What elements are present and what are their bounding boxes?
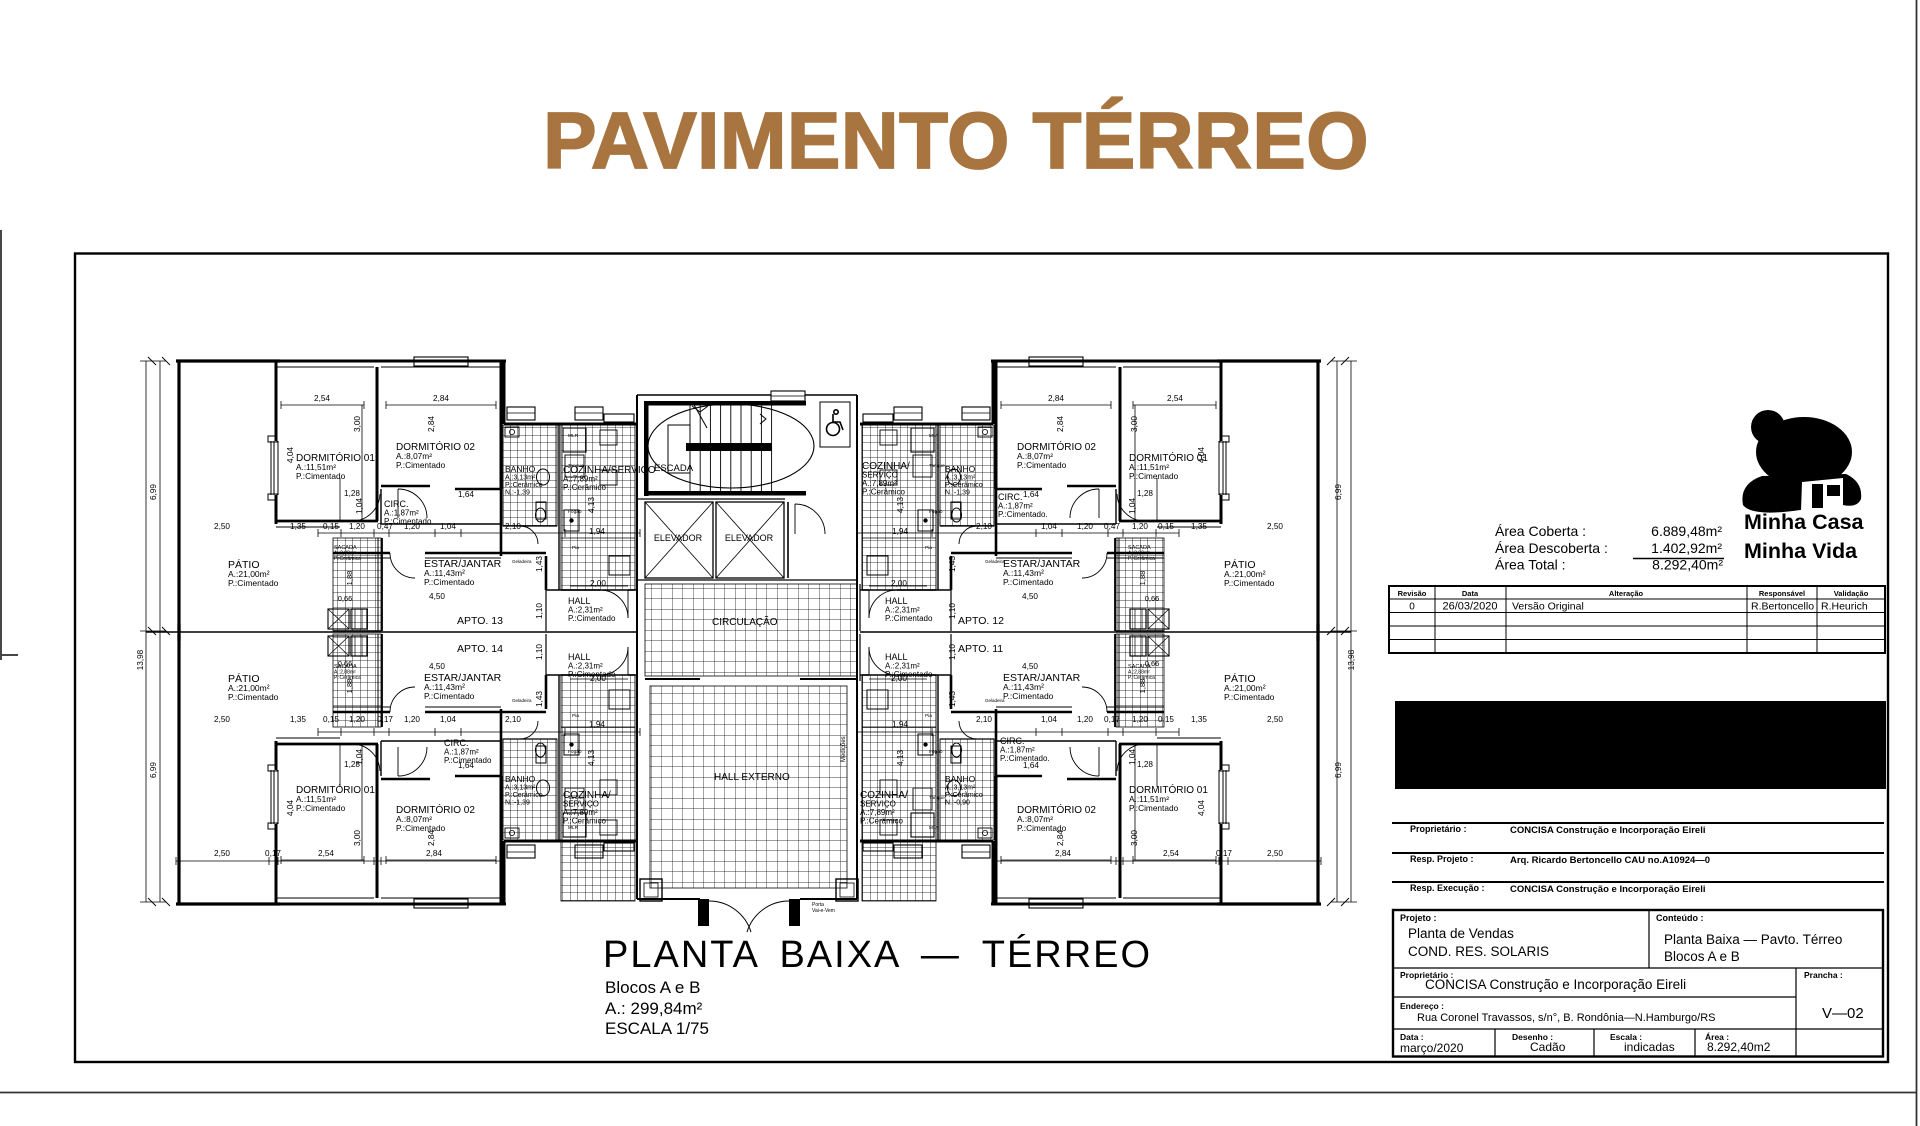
svg-text:1,28: 1,28 [1137, 760, 1153, 769]
svg-text:Data: Data [1462, 589, 1479, 598]
svg-text:1,04: 1,04 [1128, 749, 1137, 765]
svg-text:1,28: 1,28 [344, 760, 360, 769]
svg-text:ESCADA: ESCADA [654, 463, 694, 474]
svg-text:CIRCULAÇÃO: CIRCULAÇÃO [712, 615, 778, 628]
svg-text:2,54: 2,54 [1167, 394, 1183, 403]
svg-text:3,00: 3,00 [353, 416, 362, 432]
svg-text:1.402,92m²: 1.402,92m² [1651, 540, 1722, 556]
svg-text:N.:-1,39: N.:-1,39 [505, 800, 530, 807]
svg-text:P.:Cimentado: P.:Cimentado [424, 691, 475, 701]
svg-text:2,50: 2,50 [1267, 522, 1283, 531]
svg-text:1,20: 1,20 [349, 522, 365, 531]
svg-text:N.:-1,39: N.:-1,39 [945, 490, 970, 497]
svg-text:Pia: Pia [925, 713, 932, 719]
svg-text:0,17: 0,17 [377, 715, 393, 724]
svg-text:P.:Cerâmico: P.:Cerâmico [945, 792, 983, 799]
svg-text:0,17: 0,17 [265, 849, 281, 858]
svg-text:CONCISA Construção e Incorp: CONCISA Construção e Incorporação Eireli [1425, 977, 1686, 992]
svg-text:4,04: 4,04 [286, 447, 295, 463]
svg-text:Tanque: Tanque [929, 795, 945, 801]
svg-text:Geladeira: Geladeira [985, 698, 1005, 703]
svg-text:P.:Cimentado: P.:Cimentado [1003, 577, 1054, 587]
svg-text:Minha Casa: Minha Casa [1744, 510, 1865, 534]
svg-text:1,35: 1,35 [1191, 522, 1207, 531]
svg-text:P.:Cerâmico: P.:Cerâmico [505, 792, 543, 799]
svg-text:BANHO: BANHO [505, 774, 536, 784]
svg-text:P.:Cimentado: P.:Cimentado [396, 460, 446, 470]
svg-text:1,35: 1,35 [290, 715, 306, 724]
svg-text:1,20: 1,20 [1132, 522, 1148, 531]
svg-text:4,04: 4,04 [286, 800, 295, 816]
svg-text:P.:Cerâmico: P.:Cerâmico [945, 482, 983, 489]
svg-text:0,17: 0,17 [1104, 715, 1120, 724]
svg-text:3,00: 3,00 [1130, 830, 1139, 846]
svg-text:P.:Cimentado: P.:Cimentado [1224, 578, 1275, 588]
svg-text:Prancha :: Prancha : [1804, 970, 1843, 980]
svg-text:P.:Cimentado: P.:Cimentado [396, 823, 446, 833]
svg-text:COND. RES. SOLARIS: COND. RES. SOLARIS [1408, 944, 1549, 959]
svg-text:2,54: 2,54 [318, 849, 334, 858]
svg-text:1,94: 1,94 [892, 720, 908, 729]
svg-text:1,04: 1,04 [440, 715, 456, 724]
svg-text:2,50: 2,50 [214, 849, 230, 858]
svg-text:P.:Cimentado: P.:Cimentado [885, 614, 933, 623]
svg-text:BANHO: BANHO [945, 774, 976, 784]
svg-text:1,88: 1,88 [345, 571, 354, 586]
svg-text:P.:Cimentado: P.:Cimentado [1003, 691, 1054, 701]
svg-text:2,50: 2,50 [1267, 715, 1283, 724]
svg-text:R.Bertoncello: R.Bertoncello [1751, 601, 1814, 613]
svg-text:1,94: 1,94 [589, 527, 605, 536]
svg-text:BANHO: BANHO [945, 464, 976, 474]
svg-text:CIRC.: CIRC. [444, 738, 469, 748]
svg-text:Minha Vida: Minha Vida [1744, 539, 1858, 563]
svg-text:1,20: 1,20 [404, 715, 420, 724]
svg-text:HALL: HALL [885, 652, 908, 662]
svg-text:Validação: Validação [1834, 589, 1869, 598]
svg-text:0,15: 0,15 [1158, 715, 1174, 724]
svg-text:0,15: 0,15 [323, 522, 339, 531]
svg-text:Proprietário :: Proprietário : [1410, 824, 1467, 834]
svg-text:2,84: 2,84 [427, 416, 436, 432]
svg-text:P.:Cerâmica: P.:Cerâmica [1128, 556, 1155, 562]
svg-text:1,20: 1,20 [1132, 715, 1148, 724]
svg-text:HALL: HALL [568, 652, 591, 662]
svg-text:1,20: 1,20 [349, 715, 365, 724]
svg-text:6,99: 6,99 [1334, 762, 1343, 778]
svg-text:0,17: 0,17 [1216, 849, 1232, 858]
svg-text:2,84: 2,84 [1056, 416, 1065, 432]
svg-text:2,84: 2,84 [1055, 849, 1071, 858]
svg-text:A.:3,13m²: A.:3,13m² [945, 785, 976, 792]
svg-text:P.:Cimentado: P.:Cimentado [885, 670, 933, 679]
svg-text:4,13: 4,13 [587, 497, 596, 513]
svg-text:CIRC.: CIRC. [1000, 736, 1025, 746]
svg-text:Rua Coronel Travassos, s/n°: Rua Coronel Travassos, s/n°, B. Rondônia… [1417, 1012, 1715, 1024]
svg-text:1,35: 1,35 [290, 522, 306, 531]
svg-text:2,10: 2,10 [976, 715, 992, 724]
svg-text:2,54: 2,54 [314, 394, 330, 403]
svg-text:Tanque: Tanque [568, 795, 584, 801]
svg-text:Pia: Pia [925, 545, 932, 551]
svg-text:Geladeira: Geladeira [985, 559, 1005, 564]
svg-text:Fogão: Fogão [568, 509, 582, 515]
svg-text:0: 0 [1409, 602, 1415, 613]
svg-text:2,00: 2,00 [891, 579, 907, 588]
svg-text:1,04: 1,04 [355, 498, 364, 514]
svg-text:4,50: 4,50 [1022, 662, 1038, 671]
svg-text:A.:3,13m²: A.:3,13m² [505, 475, 536, 482]
svg-text:Versão Original: Versão Original [1512, 601, 1584, 613]
svg-text:2,50: 2,50 [1267, 849, 1283, 858]
svg-text:Arq. Ricardo Bertoncello CA: Arq. Ricardo Bertoncello CAU no.A10924—0 [1510, 855, 1710, 866]
svg-text:0,15: 0,15 [1158, 522, 1174, 531]
svg-text:1,94: 1,94 [892, 527, 908, 536]
svg-text:0,66: 0,66 [1145, 594, 1160, 603]
svg-text:P.:Cimentado: P.:Cimentado [384, 517, 432, 526]
svg-text:Área Total :: Área Total : [1495, 557, 1566, 573]
svg-text:2,00: 2,00 [590, 579, 606, 588]
svg-text:Pia: Pia [572, 713, 579, 719]
svg-text:0,15: 0,15 [323, 715, 339, 724]
svg-text:PLANTA BAIXA — TÉRREO: PLANTA BAIXA — TÉRREO [603, 933, 1152, 976]
svg-text:Fogão: Fogão [929, 749, 943, 755]
svg-text:Tanque: Tanque [929, 463, 945, 469]
svg-text:1,20: 1,20 [1077, 522, 1093, 531]
svg-text:Geladeira: Geladeira [512, 559, 532, 564]
svg-text:4,50: 4,50 [429, 662, 445, 671]
svg-text:1,10: 1,10 [948, 644, 957, 660]
svg-text:6.889,48m²: 6.889,48m² [1651, 523, 1722, 539]
svg-text:Blocos A e B: Blocos A e B [605, 978, 700, 997]
svg-text:2,50: 2,50 [214, 715, 230, 724]
svg-text:MLR: MLR [568, 433, 579, 439]
svg-text:13,98: 13,98 [1347, 649, 1356, 670]
svg-text:Tanque: Tanque [568, 463, 584, 469]
svg-text:APTO. 11: APTO. 11 [958, 643, 1003, 655]
svg-text:1,43: 1,43 [535, 691, 544, 707]
svg-text:MLR: MLR [568, 825, 579, 831]
svg-text:2,84: 2,84 [433, 394, 449, 403]
svg-text:3,00: 3,00 [353, 830, 362, 846]
svg-text:1,64: 1,64 [458, 490, 474, 499]
svg-text:Blocos A e B: Blocos A e B [1664, 949, 1740, 964]
svg-text:2,54: 2,54 [1163, 849, 1179, 858]
svg-text:P.:Cimentado: P.:Cimentado [444, 756, 492, 765]
svg-text:P.:Cimentado: P.:Cimentado [296, 471, 346, 481]
svg-text:2,50: 2,50 [214, 522, 230, 531]
svg-text:1,35: 1,35 [1191, 715, 1207, 724]
svg-text:P.:Cerâmico: P.:Cerâmico [860, 817, 904, 826]
svg-text:6,99: 6,99 [149, 484, 158, 500]
svg-text:A.:3,13m²: A.:3,13m² [505, 785, 536, 792]
svg-text:1,20: 1,20 [1077, 715, 1093, 724]
svg-text:2,10: 2,10 [505, 522, 521, 531]
svg-text:1,43: 1,43 [535, 556, 544, 572]
svg-text:março/2020: março/2020 [1400, 1041, 1464, 1055]
svg-text:1,28: 1,28 [344, 489, 360, 498]
svg-text:P.:Cimentado: P.:Cimentado [228, 578, 279, 588]
svg-text:1,04: 1,04 [1041, 715, 1057, 724]
svg-text:1,04: 1,04 [1041, 522, 1057, 531]
svg-text:Pia: Pia [572, 545, 579, 551]
svg-text:HALL: HALL [885, 596, 908, 606]
svg-text:Responsável: Responsável [1759, 589, 1805, 598]
svg-text:Cadão: Cadão [1530, 1040, 1566, 1054]
svg-text:MLR: MLR [929, 825, 940, 831]
svg-text:1,04: 1,04 [440, 522, 456, 531]
svg-text:4,50: 4,50 [429, 592, 445, 601]
svg-text:BANHO: BANHO [505, 464, 536, 474]
svg-text:Resp. Execução :: Resp. Execução : [1410, 883, 1485, 893]
svg-text:Vai-e-Vem: Vai-e-Vem [812, 908, 835, 914]
svg-text:1,04: 1,04 [1128, 498, 1137, 514]
svg-text:HALL: HALL [568, 596, 591, 606]
svg-text:2,10: 2,10 [976, 522, 992, 531]
svg-text:P.:Cimentado: P.:Cimentado [1129, 803, 1179, 813]
svg-text:P.:Cimentado: P.:Cimentado [568, 614, 616, 623]
svg-text:Fogão: Fogão [929, 509, 943, 515]
svg-text:4,04: 4,04 [1197, 800, 1206, 816]
svg-text:P.:Cerâmica: P.:Cerâmica [334, 675, 361, 681]
svg-text:3,00: 3,00 [1130, 416, 1139, 432]
svg-text:P.:Cimentado: P.:Cimentado [424, 577, 475, 587]
svg-text:P.:Cerâmico: P.:Cerâmico [862, 488, 906, 497]
svg-text:Conteúdo :: Conteúdo : [1656, 913, 1704, 923]
svg-text:N.:-1,39: N.:-1,39 [505, 490, 530, 497]
svg-text:1,64: 1,64 [1023, 490, 1039, 499]
svg-text:4,13: 4,13 [896, 497, 905, 513]
svg-text:6,99: 6,99 [149, 762, 158, 778]
svg-text:Resp. Projeto :: Resp. Projeto : [1410, 854, 1474, 864]
svg-text:A.: 299,84m²: A.: 299,84m² [605, 999, 703, 1018]
svg-text:1,43: 1,43 [948, 691, 957, 707]
svg-text:APTO. 12: APTO. 12 [958, 615, 1004, 627]
svg-text:MLR: MLR [929, 433, 940, 439]
svg-text:Área Coberta :: Área Coberta : [1495, 523, 1586, 539]
svg-text:Endereço :: Endereço : [1400, 1001, 1444, 1011]
svg-text:Alteração: Alteração [1609, 589, 1644, 598]
svg-text:P.:Cimentado: P.:Cimentado [296, 803, 346, 813]
svg-text:Planta Baixa — Pavto. Térr: Planta Baixa — Pavto. Térreo [1664, 932, 1842, 947]
svg-text:1,10: 1,10 [948, 603, 957, 619]
svg-text:P.:Cimentado: P.:Cimentado [1224, 692, 1275, 702]
svg-text:A.:3,13m²: A.:3,13m² [945, 475, 976, 482]
svg-text:APTO. 13: APTO. 13 [457, 615, 503, 627]
svg-text:ELEVADOR: ELEVADOR [654, 533, 703, 543]
svg-text:Fogão: Fogão [568, 749, 582, 755]
svg-text:CIRC.: CIRC. [384, 499, 409, 509]
svg-text:P.:Cerâmico: P.:Cerâmico [563, 483, 607, 492]
svg-text:Geladeira: Geladeira [512, 698, 532, 703]
svg-text:P.:Cimentado.: P.:Cimentado. [1000, 754, 1050, 763]
svg-text:P.:Cimentado: P.:Cimentado [1129, 471, 1179, 481]
svg-text:P.:Cimentado: P.:Cimentado [568, 670, 616, 679]
svg-text:4,13: 4,13 [896, 750, 905, 766]
svg-text:Planta de Vendas: Planta de Vendas [1408, 926, 1514, 941]
svg-text:6,99: 6,99 [1334, 484, 1343, 500]
svg-text:0,66: 0,66 [338, 594, 353, 603]
svg-text:P.:Cimentado: P.:Cimentado [1017, 460, 1067, 470]
svg-text:HALL EXTERNO: HALL EXTERNO [714, 772, 790, 783]
svg-text:N.:-0,90: N.:-0,90 [945, 800, 970, 807]
svg-text:PAVIMENTO TÉRREO: PAVIMENTO TÉRREO [543, 96, 1369, 185]
svg-text:CONCISA Construção e Incorp: CONCISA Construção e Incorporação Eireli [1510, 825, 1706, 836]
svg-text:APTO. 14: APTO. 14 [457, 643, 503, 655]
svg-text:2,84: 2,84 [426, 849, 442, 858]
svg-text:P.:Cimentado.: P.:Cimentado. [998, 510, 1048, 519]
svg-text:1,28: 1,28 [1137, 489, 1153, 498]
svg-text:1,88: 1,88 [1138, 571, 1147, 586]
svg-text:8.292,40m2: 8.292,40m2 [1707, 1040, 1771, 1054]
svg-text:Medições: Medições [841, 736, 847, 762]
svg-text:4,50: 4,50 [1022, 592, 1038, 601]
svg-text:indicadas: indicadas [1624, 1040, 1675, 1054]
svg-text:ELEVADOR: ELEVADOR [725, 533, 774, 543]
svg-text:26/03/2020: 26/03/2020 [1442, 601, 1497, 613]
svg-text:P.:Cimentado: P.:Cimentado [228, 692, 279, 702]
svg-text:4,13: 4,13 [587, 750, 596, 766]
svg-text:ESCALA 1/75: ESCALA 1/75 [605, 1019, 709, 1038]
svg-text:P.:Cerâmico: P.:Cerâmico [563, 817, 607, 826]
svg-text:Projeto :: Projeto : [1400, 913, 1437, 923]
svg-text:Revisão: Revisão [1398, 589, 1427, 598]
svg-text:P.:Cerâmica: P.:Cerâmica [1128, 675, 1155, 681]
svg-text:1,43: 1,43 [948, 556, 957, 572]
svg-text:0,47: 0,47 [1104, 522, 1120, 531]
svg-text:Área Descoberta :: Área Descoberta : [1495, 540, 1608, 556]
svg-text:P.:Cerâmico: P.:Cerâmico [505, 482, 543, 489]
svg-text:V—02: V—02 [1822, 1005, 1864, 1022]
svg-text:13,98: 13,98 [136, 649, 145, 670]
svg-text:CIRC.: CIRC. [998, 492, 1023, 502]
svg-text:1,10: 1,10 [535, 644, 544, 660]
svg-text:2,84: 2,84 [1048, 394, 1064, 403]
svg-text:P.:Cimentado: P.:Cimentado [1017, 823, 1067, 833]
svg-text:CONCISA Construção e Incorp: CONCISA Construção e Incorporação Eireli [1510, 884, 1706, 895]
svg-text:2,10: 2,10 [505, 715, 521, 724]
svg-text:R.Heurich: R.Heurich [1821, 601, 1868, 613]
svg-text:P.:Cerâmica: P.:Cerâmica [334, 556, 361, 562]
svg-text:1,94: 1,94 [589, 720, 605, 729]
svg-text:1,10: 1,10 [535, 603, 544, 619]
